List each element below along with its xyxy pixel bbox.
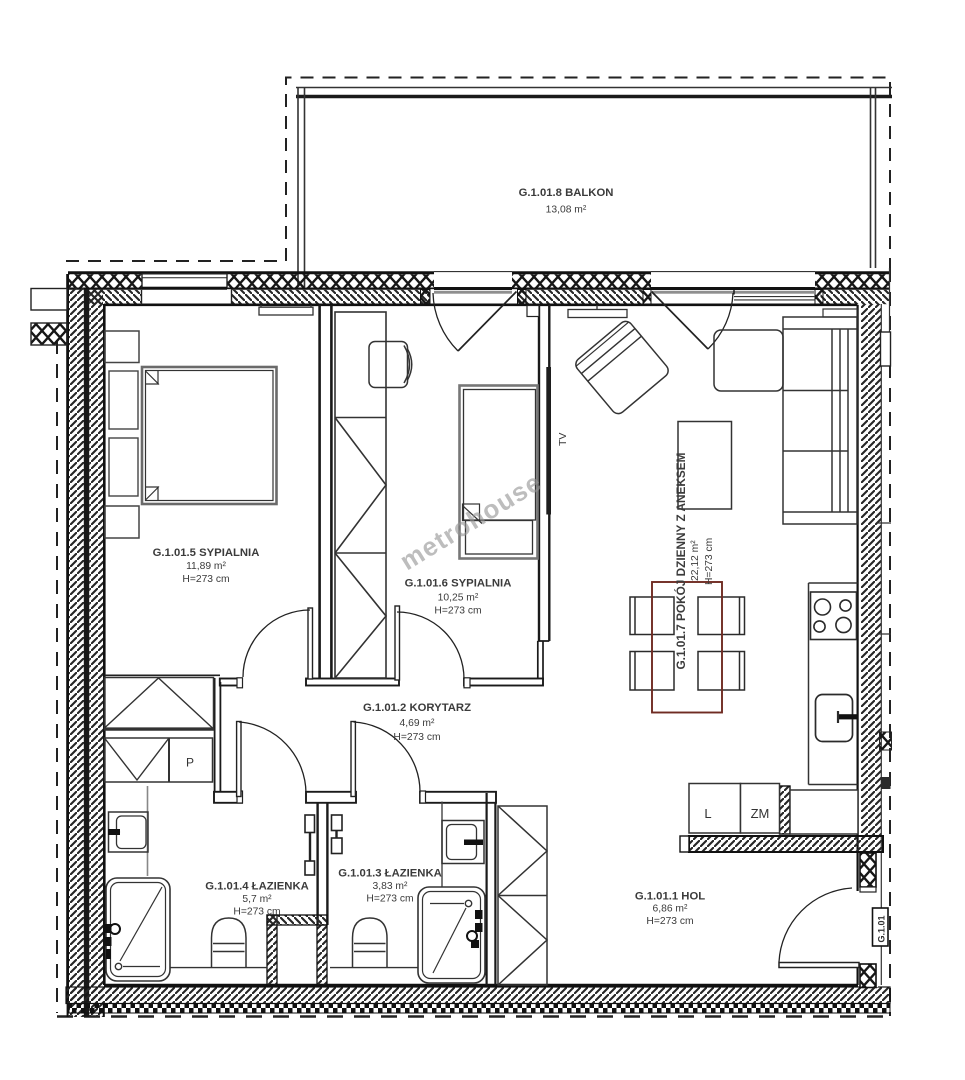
svg-text:10,25 m²: 10,25 m² (438, 593, 479, 604)
svg-text:H=273 cm: H=273 cm (434, 606, 481, 617)
svg-text:ZM: ZM (751, 806, 770, 821)
svg-text:H=273 cm: H=273 cm (393, 732, 440, 743)
svg-text:22,12 m²: 22,12 m² (690, 540, 701, 581)
svg-text:G.1.01: G.1.01 (877, 915, 887, 942)
svg-text:G.1.01.2 KORYTARZ: G.1.01.2 KORYTARZ (363, 702, 471, 714)
svg-text:11,89 m²: 11,89 m² (186, 561, 226, 572)
svg-text:13,08 m²: 13,08 m² (546, 205, 587, 216)
svg-text:G.1.01.5 SYPIALNIA: G.1.01.5 SYPIALNIA (153, 547, 260, 559)
svg-text:G.1.01.4 ŁAZIENKA: G.1.01.4 ŁAZIENKA (205, 881, 309, 893)
svg-text:G.1.01.1 HOL: G.1.01.1 HOL (635, 891, 705, 903)
svg-text:4,69 m²: 4,69 m² (400, 718, 435, 729)
svg-text:H=273 cm: H=273 cm (704, 538, 715, 585)
svg-text:6,86 m²: 6,86 m² (653, 904, 688, 915)
svg-text:G.1.01.3 ŁAZIENKA: G.1.01.3 ŁAZIENKA (338, 868, 442, 880)
svg-text:TV: TV (557, 433, 569, 446)
svg-text:H=273 cm: H=273 cm (182, 574, 229, 585)
svg-text:H=273 cm: H=273 cm (646, 916, 693, 927)
svg-text:P: P (186, 756, 194, 770)
svg-text:5,7 m²: 5,7 m² (242, 894, 272, 905)
svg-text:G.1.01.6 SYPIALNIA: G.1.01.6 SYPIALNIA (405, 578, 512, 590)
svg-text:3,83 m²: 3,83 m² (373, 881, 408, 892)
svg-text:H=273 cm: H=273 cm (233, 907, 280, 918)
svg-text:G.1.01.8 BALKON: G.1.01.8 BALKON (519, 187, 614, 199)
svg-text:H=273 cm: H=273 cm (366, 894, 413, 905)
svg-text:G.1.01.7 POKÓJ DZIENNY Z ANEKS: G.1.01.7 POKÓJ DZIENNY Z ANEKSEM (674, 452, 688, 669)
svg-text:L: L (704, 806, 711, 821)
